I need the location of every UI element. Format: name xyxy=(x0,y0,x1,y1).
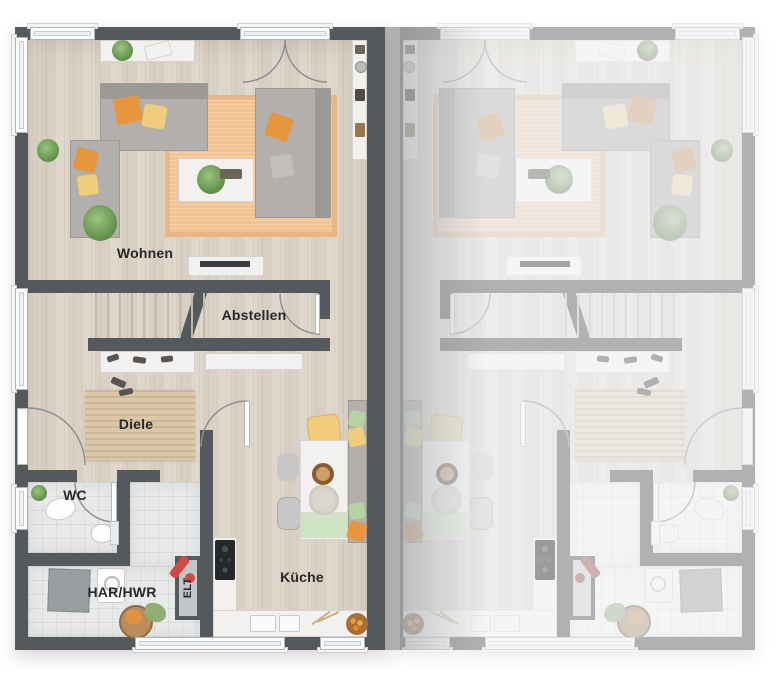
washer-door xyxy=(650,576,666,592)
plant-corner xyxy=(83,205,117,241)
pillow-yellow xyxy=(77,174,99,196)
cooktop xyxy=(215,540,235,580)
plant-on-sideboard xyxy=(637,40,658,61)
books xyxy=(355,123,365,137)
plant-wc xyxy=(723,485,739,501)
terrace-door xyxy=(440,27,530,40)
decor-wreath xyxy=(436,463,458,485)
cooktop xyxy=(535,540,555,580)
wc-label: WC xyxy=(63,487,87,503)
kitchen-door-leaf xyxy=(244,401,250,447)
window-south-kitchen xyxy=(320,637,365,650)
window-west-hall xyxy=(15,288,28,390)
diele-label: Diele xyxy=(119,416,153,432)
window-west-wc xyxy=(15,487,28,530)
pillow-yellow xyxy=(602,103,628,129)
shoes xyxy=(597,355,610,362)
hall-sideboard xyxy=(205,353,303,370)
tray xyxy=(220,169,242,179)
window-west-living xyxy=(742,37,755,133)
pillow-gray xyxy=(475,153,500,178)
pillow-yellow xyxy=(346,426,366,447)
books xyxy=(355,45,365,54)
wc-door-leaf xyxy=(111,482,117,522)
hall-sideboard xyxy=(467,353,565,370)
pillow-green xyxy=(404,410,423,429)
shoes xyxy=(161,355,174,362)
window-south-kitchen xyxy=(405,637,450,650)
storage-box xyxy=(679,568,722,612)
storage-box xyxy=(47,568,90,612)
sink-basin xyxy=(279,615,300,632)
toilet-tank xyxy=(110,521,119,545)
pillow-green xyxy=(348,502,366,520)
wc-door-leaf xyxy=(653,482,659,522)
window-south-har xyxy=(135,637,285,650)
fruit-bowl xyxy=(346,613,368,635)
decor-wreath xyxy=(312,463,334,485)
toilet-tank xyxy=(651,521,660,545)
terrace-door xyxy=(240,27,330,40)
books xyxy=(355,89,365,101)
speaker xyxy=(403,61,415,73)
plant-on-sideboard xyxy=(112,40,133,61)
pillow-orange xyxy=(113,95,144,126)
books xyxy=(405,45,415,54)
sink-basin xyxy=(250,615,276,632)
chair-gray xyxy=(277,453,299,481)
entrance-door-leaf xyxy=(742,408,753,465)
toilet-bowl xyxy=(657,524,679,543)
fruit-bowl xyxy=(402,613,424,635)
vacuum-body xyxy=(575,573,585,583)
pillow-orange xyxy=(627,95,658,126)
laundry-contents xyxy=(126,610,142,624)
entrance-door-leaf xyxy=(17,408,28,465)
flower-bouquet xyxy=(309,485,339,515)
flower-bouquet xyxy=(431,485,461,515)
sink-basin xyxy=(470,615,491,632)
window-south-har xyxy=(485,637,635,650)
har-hwr-label: HAR/HWR xyxy=(87,584,156,600)
window-west-hall xyxy=(742,288,755,390)
pillow-yellow xyxy=(671,174,693,196)
plant-wc xyxy=(31,485,47,501)
sofa-backrest xyxy=(315,88,331,218)
table-runner-green xyxy=(301,512,347,538)
tray xyxy=(528,169,550,179)
sink-basin xyxy=(494,615,520,632)
abstellen-door-leaf xyxy=(450,294,455,334)
wohnen-label: Wohnen xyxy=(117,245,173,261)
pillow-green xyxy=(404,502,422,520)
sofa-backrest xyxy=(562,83,670,99)
tv xyxy=(520,261,570,267)
sofa-backrest xyxy=(439,88,455,218)
chair-gray xyxy=(471,453,493,481)
elt-label: ELT xyxy=(182,578,194,599)
unit-right-mirrored: Wohnen Abstellen Diele WC HAR/HWR ELT Kü… xyxy=(385,27,755,650)
kitchen-door-leaf xyxy=(520,401,526,447)
pillow-yellow xyxy=(141,103,167,129)
chair-gray xyxy=(277,497,301,530)
window-north-living xyxy=(30,27,95,40)
laundry-contents xyxy=(628,610,644,624)
books xyxy=(405,89,415,101)
window-west-wc xyxy=(742,487,755,530)
unit-left: Wohnen Abstellen Diele WC HAR/HWR ELT Kü… xyxy=(15,27,385,650)
books xyxy=(405,123,415,137)
plant-floor xyxy=(711,139,733,162)
window-north-living xyxy=(675,27,740,40)
sofa-backrest xyxy=(100,83,208,99)
floorplan-canvas: Wohnen Abstellen Diele WC HAR/HWR ELT Kü… xyxy=(0,0,775,673)
window-west-living xyxy=(15,37,28,133)
tv xyxy=(200,261,250,267)
pillow-gray xyxy=(269,153,294,178)
plant-corner xyxy=(653,205,687,241)
abstellen-label: Abstellen xyxy=(222,307,287,323)
kueche-label: Küche xyxy=(280,569,324,585)
chair-gray xyxy=(469,497,493,530)
pillow-green xyxy=(348,410,367,429)
plant-floor xyxy=(37,139,59,162)
table-runner-green xyxy=(423,512,469,538)
abstellen-door-leaf xyxy=(315,294,320,334)
speaker xyxy=(355,61,367,73)
